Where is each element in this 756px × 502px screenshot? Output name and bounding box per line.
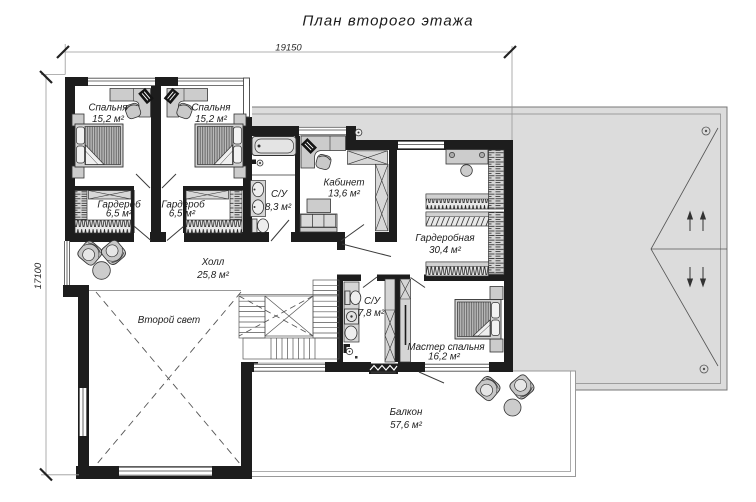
svg-text:Второй свет: Второй свет [138,315,200,326]
svg-text:Балкон: Балкон [390,407,423,418]
svg-text:8,3 м²: 8,3 м² [265,202,292,213]
svg-text:6,5 м²: 6,5 м² [106,209,133,220]
svg-text:25,8 м²: 25,8 м² [196,270,230,281]
svg-text:57,6 м²: 57,6 м² [390,420,423,431]
svg-text:Спальня: Спальня [88,103,128,114]
svg-text:16,2 м²: 16,2 м² [428,352,461,363]
svg-text:Спальня: Спальня [191,103,231,114]
svg-text:План второго этажа: План второго этажа [302,13,473,30]
svg-text:Кабинет: Кабинет [323,178,364,189]
svg-text:13,6 м²: 13,6 м² [328,189,361,200]
svg-text:19150: 19150 [275,43,302,54]
svg-text:С/У: С/У [364,296,382,307]
svg-text:6,5 м²: 6,5 м² [169,209,196,220]
svg-text:С/У: С/У [271,189,289,200]
svg-text:17100: 17100 [33,262,44,289]
svg-text:Холл: Холл [201,257,225,268]
svg-text:15,2 м²: 15,2 м² [92,114,125,125]
svg-text:30,4 м²: 30,4 м² [429,245,462,256]
svg-text:Гардеробная: Гардеробная [415,233,475,244]
svg-text:7,8 м²: 7,8 м² [358,308,385,319]
svg-text:15,2 м²: 15,2 м² [195,114,228,125]
